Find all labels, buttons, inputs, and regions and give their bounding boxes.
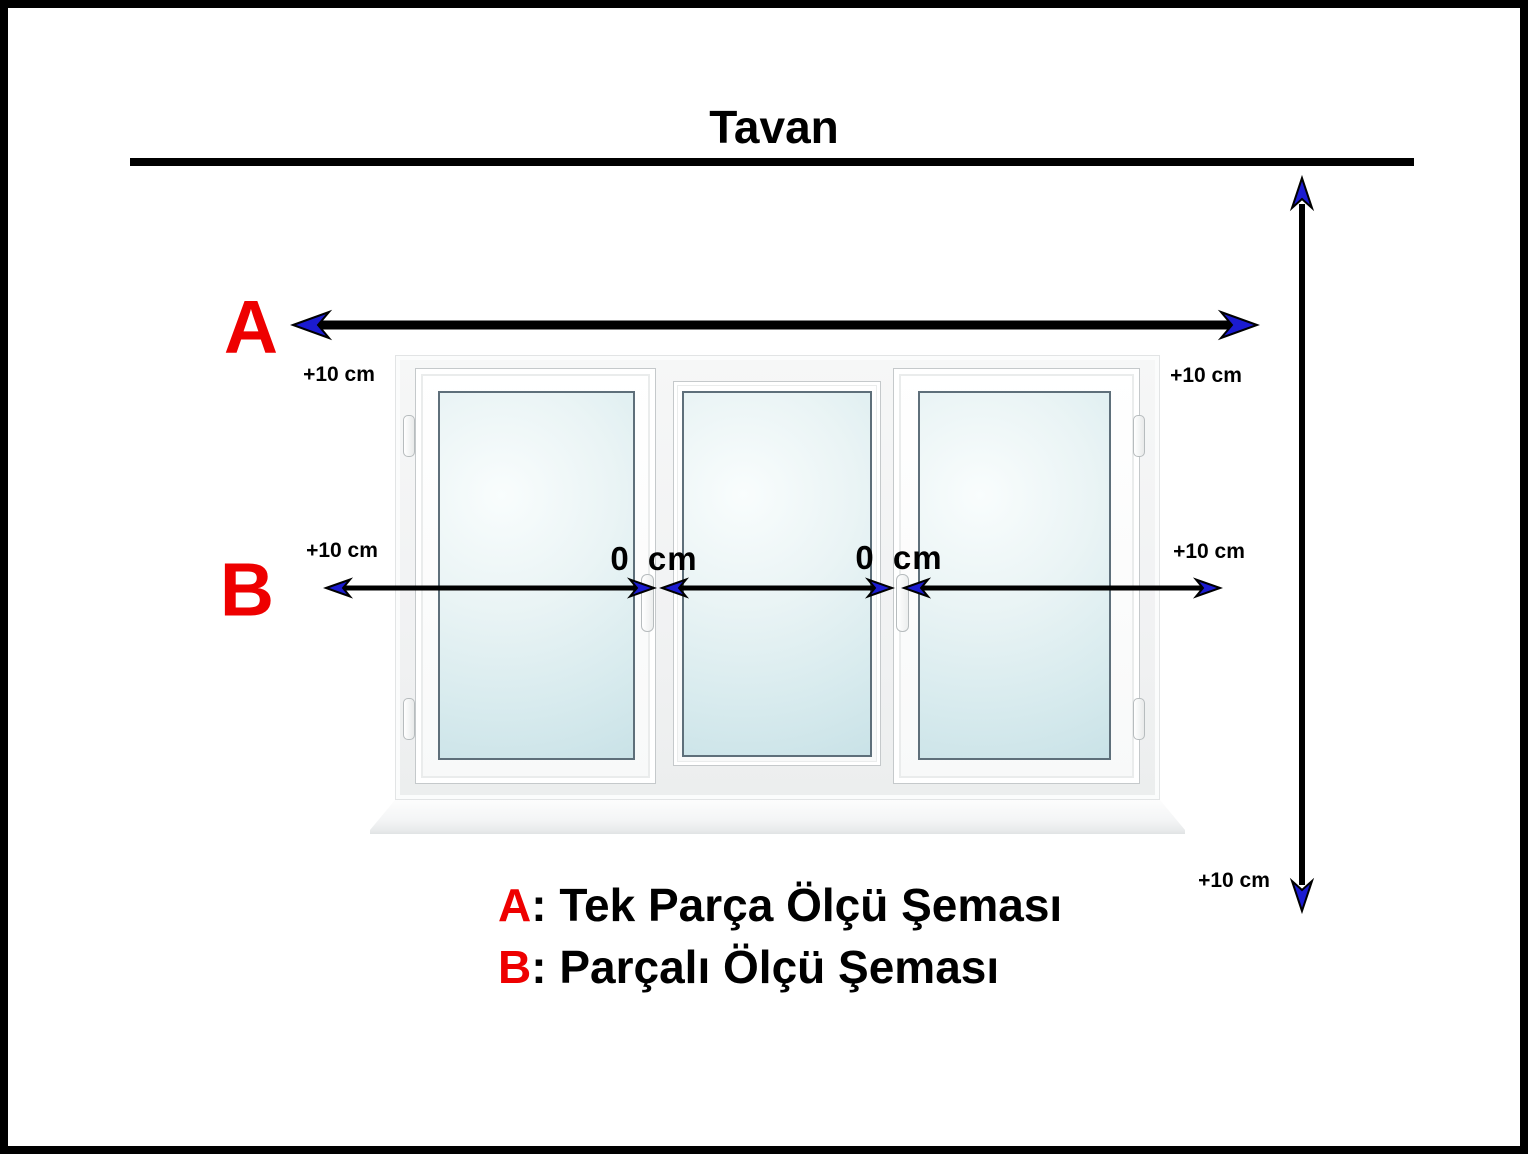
curtain-measurement-diagram: Tavan [0, 0, 1528, 1154]
window-hinge-top-right [1133, 415, 1145, 457]
window-glass-middle [682, 391, 872, 757]
offset-label-a-left: +10 cm [303, 363, 375, 387]
window-hinge-bottom-right [1133, 698, 1145, 740]
legend-line-b: B: Parçalı Ölçü Şeması [498, 936, 1062, 998]
offset-label-height-bottom: +10 cm [1198, 869, 1270, 893]
legend-a-key: A [498, 879, 531, 931]
window-glass-left [438, 391, 635, 760]
schema-a-label: A [224, 290, 278, 365]
legend-b-text: : Parçalı Ölçü Şeması [531, 941, 999, 993]
legend: A: Tek Parça Ölçü Şeması B: Parçalı Ölçü… [498, 874, 1062, 998]
offset-label-b-right: +10 cm [1173, 540, 1245, 564]
offset-label-a-right: +10 cm [1170, 364, 1242, 388]
gap-label-right-junction: 0 cm [855, 539, 942, 577]
window-hinge-bottom-left [403, 698, 415, 740]
offset-label-b-left: +10 cm [306, 539, 378, 563]
window-sill [363, 800, 1193, 836]
legend-a-text: : Tek Parça Ölçü Şeması [531, 879, 1062, 931]
window-handle-left [641, 574, 654, 632]
legend-b-key: B [498, 941, 531, 993]
schema-a-width-arrow [293, 312, 1257, 338]
window-glass-right [918, 391, 1111, 760]
schema-b-label: B [220, 553, 274, 628]
window-hinge-top-left [403, 415, 415, 457]
legend-line-a: A: Tek Parça Ölçü Şeması [498, 874, 1062, 936]
height-measure-arrow [1292, 178, 1312, 911]
ceiling-title: Tavan [709, 100, 839, 154]
gap-label-left-junction: 0 cm [610, 540, 697, 578]
window-handle-right [896, 574, 909, 632]
